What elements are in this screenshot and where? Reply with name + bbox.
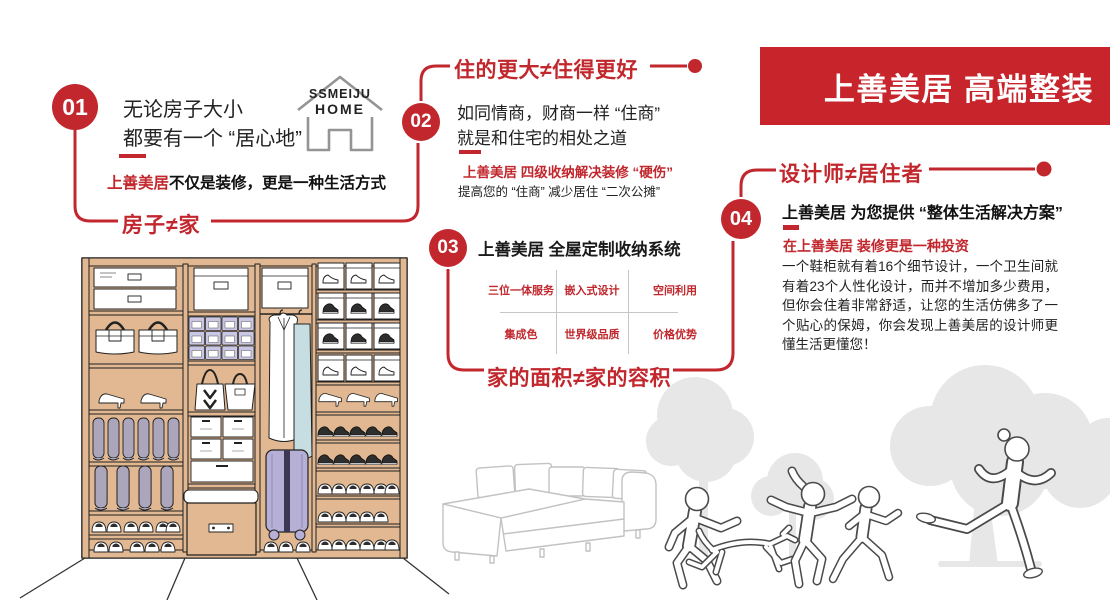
step-02-number: 02 [410, 111, 431, 133]
section2-highlight: 上善美居 四级收纳解决装修 “硬伤” [463, 161, 673, 181]
grid-divider-h [500, 312, 678, 313]
step-01-number: 01 [62, 94, 88, 121]
house-logo-text-line1: SSMEIJU [300, 87, 380, 101]
section1-body: 无论房子大小 都要有一个 “居心地” [123, 96, 302, 154]
step-02-badge: 02 [402, 103, 440, 141]
park-trees-illustration [646, 365, 1110, 567]
brand-banner: 上善美居 高端整装 [760, 47, 1110, 125]
section1-body-line1: 无论房子大小 [123, 96, 302, 125]
section4-slogan: 设计师≠居住者 [779, 158, 924, 188]
section2-subline: 提高您的 “住商” 减少居住 “二次公摊” [458, 181, 660, 200]
section1-brand-name: 上善美居 [107, 175, 169, 192]
feature-cell-2: 嵌入式设计 [556, 268, 628, 312]
feature-cell-3: 空间利用 [628, 268, 722, 312]
section3-title: 上善美居 全屋定制收纳系统 [478, 236, 681, 260]
step-03-badge: 03 [429, 229, 467, 267]
feature-cell-5: 世界级品质 [556, 312, 628, 356]
sofa-illustration [443, 463, 656, 563]
suitcase [266, 450, 308, 540]
poster: 上善美居 高端整装 01 02 03 04 无论房子大小 都要有一个 “居心地”… [0, 0, 1110, 600]
feature-cell-4: 集成色 [486, 312, 556, 356]
house-logo-text-line2: HOME [300, 101, 380, 117]
section4-highlight: 在上善美居 装修更是一种投资 [783, 236, 969, 256]
feature-cell-6: 价格优势 [628, 312, 722, 356]
section1-body-line2: 都要有一个 “居心地” [123, 125, 302, 154]
wardrobe-illustration [20, 258, 449, 600]
floor-lines [20, 558, 449, 600]
hanging-garment [294, 324, 312, 459]
step-04-number: 04 [730, 208, 752, 231]
section1-red-dash [119, 154, 146, 158]
section2-red-dash [459, 150, 481, 154]
step-03-number: 03 [437, 237, 458, 259]
section4-red-dash [783, 225, 799, 230]
section1-subline: 上善美居不仅是装修，更是一种生活方式 [107, 171, 386, 193]
section2-body-line2: 就是和住宅的相处之道 [457, 126, 660, 151]
section2-body-line1: 如同情商，财商一样 “住商” [457, 101, 660, 126]
section2-body: 如同情商，财商一样 “住商” 就是和住宅的相处之道 [457, 101, 660, 151]
section1-slogan: 房子≠家 [122, 209, 201, 239]
brand-banner-title: 上善美居 高端整装 [824, 64, 1094, 109]
section3-slogan: 家的面积≠家的容积 [487, 362, 671, 392]
feature-cell-1: 三位一体服务 [486, 268, 556, 312]
ottoman [184, 490, 258, 555]
section1-subline-rest: 不仅是装修，更是一种生活方式 [169, 175, 386, 192]
section2-slogan: 住的更大≠住得更好 [454, 54, 638, 84]
step-04-badge: 04 [721, 199, 761, 239]
section4-headline: 上善美居 为您提供 “整体生活解决方案” [782, 199, 1063, 223]
section4-body: 一个鞋柜就有着16个细节设计，一个卫生间就有着23个人性化设计，而并不增加多少费… [782, 257, 1058, 355]
step-01-badge: 01 [52, 84, 98, 130]
